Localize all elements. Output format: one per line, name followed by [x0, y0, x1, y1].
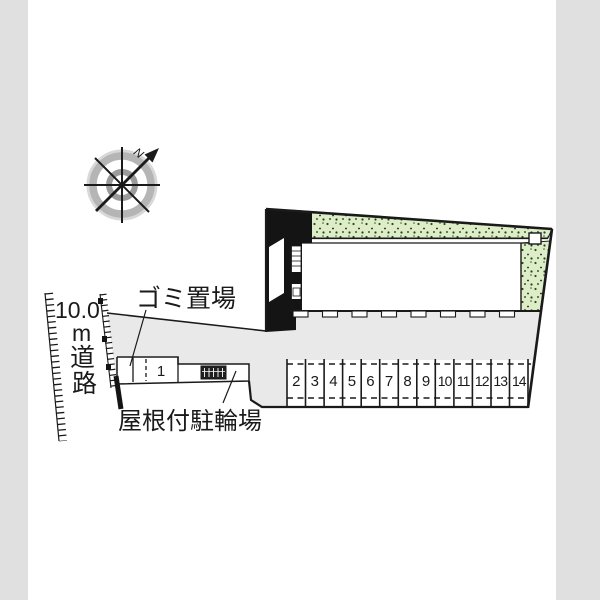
stall-number: 9 — [422, 373, 430, 390]
boundary-marker — [106, 364, 111, 370]
bike-rack-icon — [201, 366, 226, 379]
bicycle-parking-label: 屋根付駐輪場 — [118, 408, 262, 435]
building-interior — [302, 243, 521, 311]
stall-number: 12 — [475, 373, 490, 389]
corner-box — [529, 233, 541, 244]
site-plan-drawing: 2 3 4 5 6 7 8 9 10 11 12 13 14 1 — [0, 0, 600, 600]
road-kanji-1: 道 — [70, 344, 95, 372]
road-unit-text: m — [72, 320, 91, 346]
stall-number: 13 — [493, 373, 508, 389]
entrance-ramp — [269, 238, 284, 302]
site-plan-page: 2 3 4 5 6 7 8 9 10 11 12 13 14 1 — [0, 0, 600, 600]
stall-number: 5 — [348, 373, 356, 390]
boundary-marker — [102, 336, 107, 342]
stall-number: 8 — [403, 373, 411, 390]
stall-number: 14 — [512, 373, 527, 389]
stall-number: 10 — [438, 373, 453, 389]
garbage-area-label: ゴミ置場 — [136, 285, 236, 313]
stall-number-1: 1 — [157, 363, 165, 380]
road-kanji-2: 路 — [72, 370, 97, 398]
stall-number: 4 — [329, 373, 337, 390]
stall-number: 6 — [366, 373, 374, 390]
stall-number: 3 — [311, 373, 319, 390]
stall-number: 2 — [292, 373, 300, 390]
stair-strip — [292, 246, 302, 309]
stall-number: 7 — [385, 373, 393, 390]
stall-number: 11 — [457, 373, 471, 389]
